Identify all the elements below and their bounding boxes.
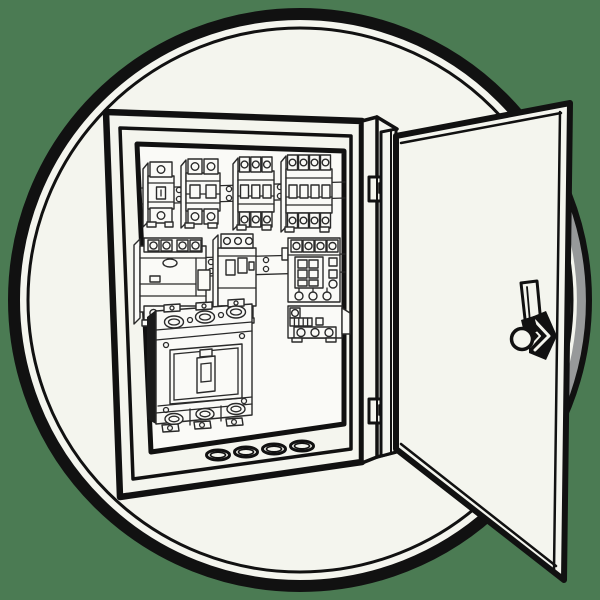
breaker-3-pole: [233, 157, 274, 230]
mccb-terminal: [196, 311, 215, 323]
start-button: [226, 260, 235, 275]
mccb-terminal: [227, 306, 246, 318]
mccb-toggle: [197, 356, 215, 393]
mccb-molded-case-breaker: [147, 299, 252, 432]
breaker-toggle: [190, 185, 200, 198]
breaker-1-pole: [143, 162, 174, 227]
overload-relay: [288, 306, 350, 342]
contactor: [282, 238, 340, 302]
illustration-canvas: [0, 0, 600, 600]
open-electrical-enclosure-drawing: [0, 0, 600, 600]
handle-pivot: [512, 329, 533, 350]
breaker-toggle: [206, 185, 216, 198]
breaker-4-pole: [281, 155, 332, 232]
rcd-test-button: [163, 259, 177, 267]
dip-switch-row: [290, 318, 312, 326]
stop-button: [238, 258, 247, 273]
mccb-terminal: [165, 316, 184, 328]
